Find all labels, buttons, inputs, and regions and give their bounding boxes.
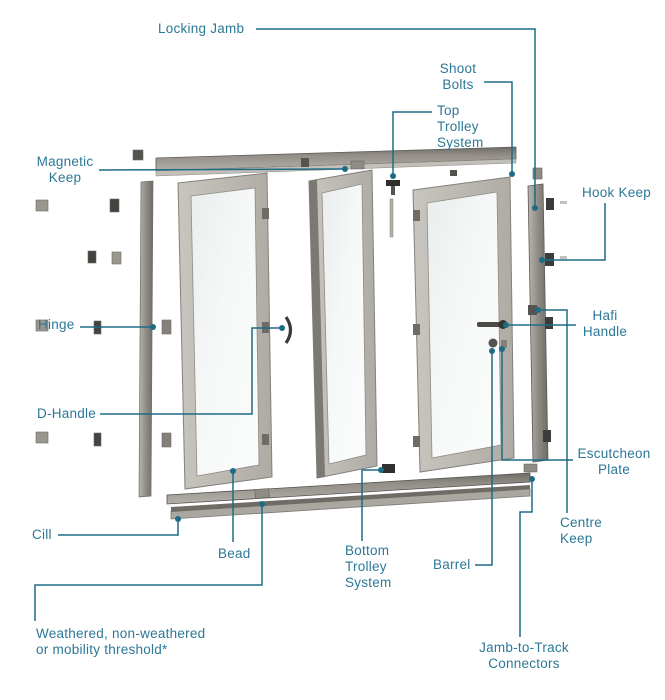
diagram-stage: Locking Jamb Shoot Bolts Top Trolley Sys… — [0, 0, 665, 700]
label-cill: Cill — [32, 527, 52, 543]
label-hook-keep: Hook Keep — [582, 185, 651, 201]
label-bead: Bead — [218, 546, 251, 562]
top-track — [156, 147, 516, 176]
label-escutcheon-plate: Escutcheon Plate — [572, 446, 656, 478]
label-jamb-to-track-connectors: Jamb-to-Track Connectors — [464, 640, 584, 672]
leader-hook-keep — [544, 203, 605, 260]
magnetic-keep-jamb — [139, 181, 153, 497]
label-hafi-handle: Hafi Handle — [574, 308, 636, 340]
barrel-part — [489, 339, 498, 348]
label-d-handle: D-Handle — [37, 406, 96, 422]
label-magnetic-keep: Magnetic Keep — [25, 154, 105, 186]
label-bottom-trolley-system: Bottom Trolley System — [345, 543, 392, 591]
d-handle-part — [286, 317, 291, 343]
label-top-trolley-system: Top Trolley System — [437, 103, 484, 151]
leader-magnetic-keep — [99, 169, 343, 170]
door-panel-left — [178, 173, 272, 489]
leader-cill — [58, 521, 178, 535]
hafi-handle-part — [477, 322, 501, 327]
label-centre-keep: Centre Keep — [560, 515, 602, 547]
leader-jamb-to-track — [520, 481, 532, 637]
jamb-connector-part — [524, 464, 537, 472]
label-shoot-bolts: Shoot Bolts — [425, 61, 491, 93]
label-weathered-threshold: Weathered, non-weathered or mobility thr… — [36, 626, 205, 658]
leader-weathered — [35, 506, 262, 621]
label-locking-jamb: Locking Jamb — [158, 21, 244, 37]
door-diagram-svg — [0, 0, 665, 700]
bottom-trolley-part — [382, 464, 395, 473]
door-panel-middle — [309, 170, 377, 478]
label-hinge: Hinge — [38, 317, 75, 333]
label-barrel: Barrel — [433, 557, 471, 573]
